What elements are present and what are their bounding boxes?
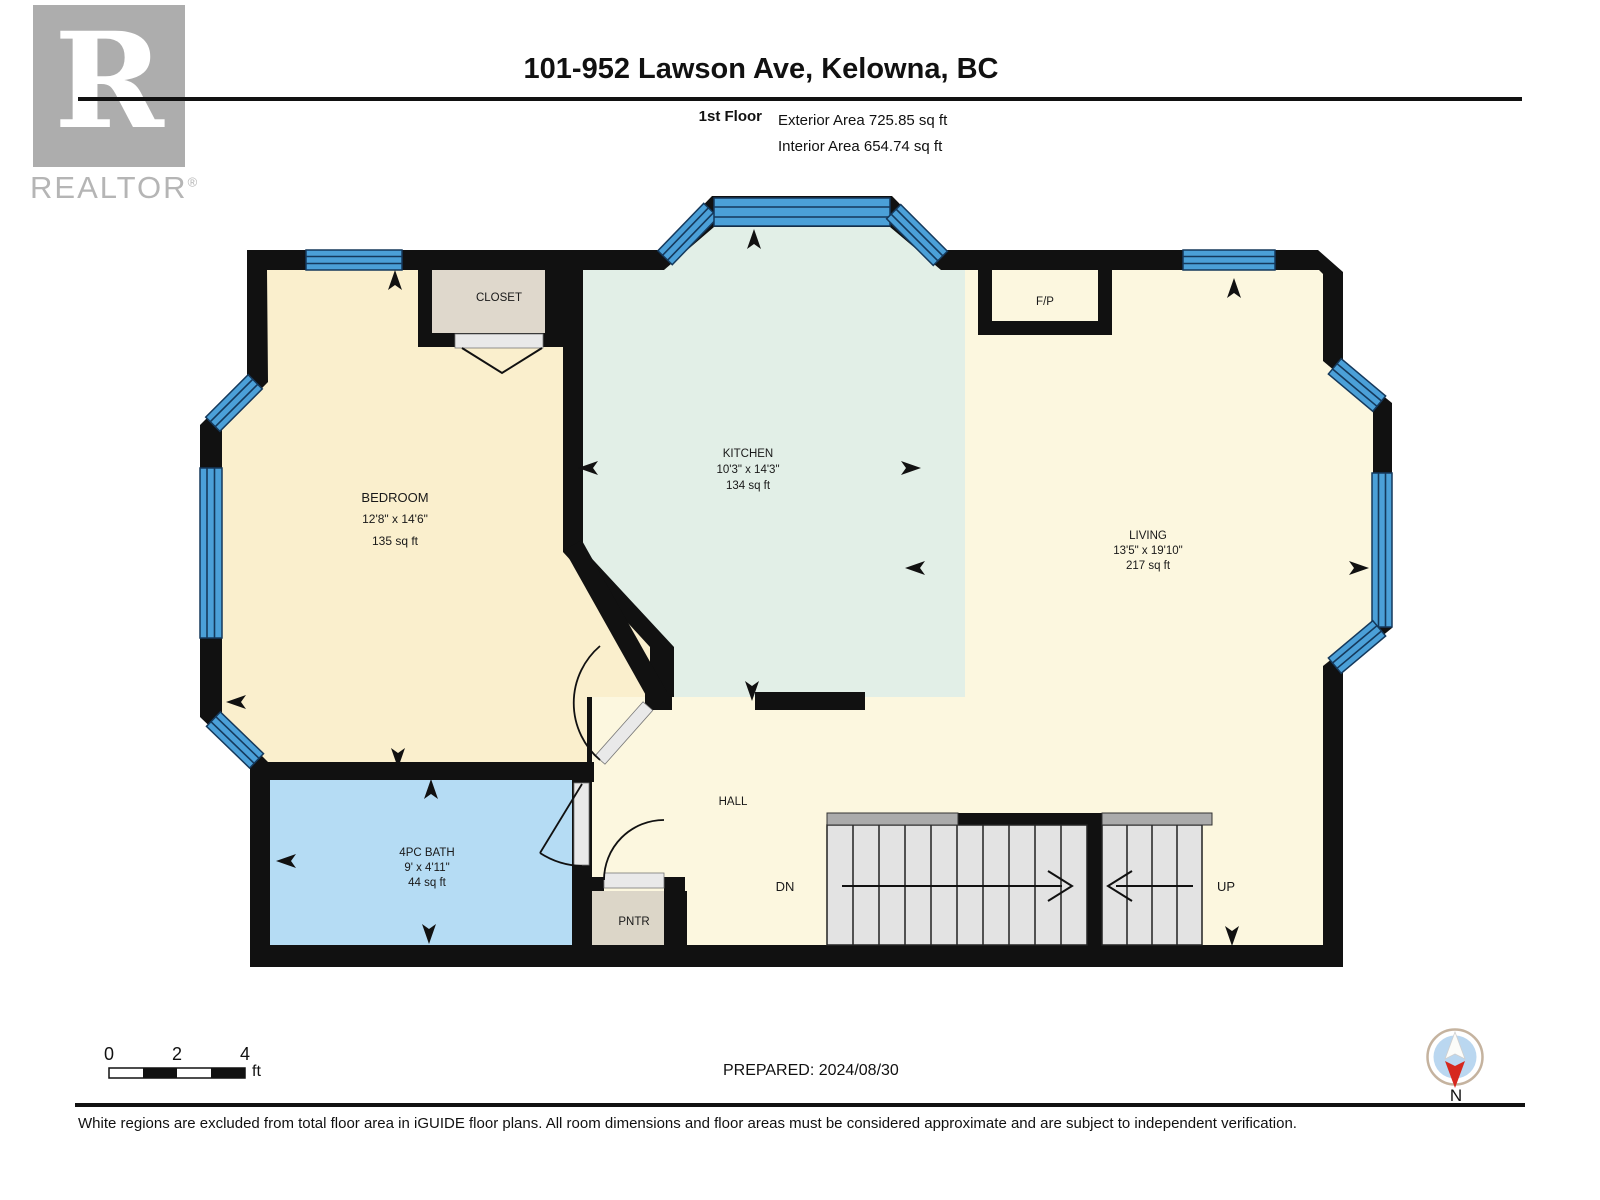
bedroom-area: 135 sq ft xyxy=(372,534,419,548)
stairs-down-railing xyxy=(827,813,958,825)
floorplan-page: R REALTOR® 101-952 Lawson Ave, Kelowna, … xyxy=(0,0,1600,1200)
stairs-up-label: UP xyxy=(1217,879,1235,894)
floorplan-drawing: BEDROOM 12'8" x 14'6" 135 sq ft KITCHEN … xyxy=(0,0,1600,1200)
disclaimer-text: White regions are excluded from total fl… xyxy=(78,1115,1528,1132)
stairs-down-label: DN xyxy=(776,879,795,894)
realtor-logo: R xyxy=(33,5,185,167)
header-rule xyxy=(78,97,1522,101)
fireplace-label: F/P xyxy=(1036,296,1054,308)
realtor-wordmark: REALTOR® xyxy=(30,170,199,206)
prepared-date: PREPARED: 2024/08/30 xyxy=(723,1062,899,1080)
bedroom-label: BEDROOM xyxy=(361,490,428,505)
kitchen-dims: 10'3" x 14'3" xyxy=(716,464,779,476)
kitchen-bay-top-window xyxy=(714,198,890,226)
stairs-up-railing xyxy=(1102,813,1212,825)
bedroom-left-window xyxy=(200,468,222,638)
bedroom-top-window xyxy=(306,250,402,270)
stairs-up xyxy=(1102,813,1212,945)
kitchen-area: 134 sq ft xyxy=(726,480,771,492)
bedroom-dims: 12'8" x 14'6" xyxy=(362,512,428,526)
bath-door-opening xyxy=(574,783,589,865)
kitchen-label: KITCHEN xyxy=(723,448,773,460)
scale-unit: ft xyxy=(252,1063,261,1081)
stairs-down xyxy=(827,813,1087,945)
footer-rule xyxy=(75,1103,1525,1107)
living-right-window xyxy=(1372,473,1392,627)
living-area: 217 sq ft xyxy=(1126,560,1171,572)
realtor-logo-r: R xyxy=(54,16,164,148)
scale-tick-0: 0 xyxy=(89,1044,129,1065)
closet-door-track xyxy=(455,334,543,348)
compass-icon xyxy=(1424,1024,1488,1092)
living-top-window xyxy=(1183,250,1275,270)
registered-mark: ® xyxy=(188,175,200,190)
hall-label: HALL xyxy=(719,796,748,808)
bath-area: 44 sq ft xyxy=(408,877,447,889)
bath-dims: 9' x 4'11" xyxy=(404,862,449,874)
living-dims: 13'5" x 19'10" xyxy=(1113,545,1182,557)
scale-bar xyxy=(109,1068,245,1078)
scale-tick-2: 2 xyxy=(157,1044,197,1065)
bath-label: 4PC BATH xyxy=(399,847,454,859)
living-label: LIVING xyxy=(1129,530,1167,542)
scale-tick-4: 4 xyxy=(225,1044,265,1065)
pantry-door-opening xyxy=(604,873,664,888)
closet-label: CLOSET xyxy=(476,292,522,304)
pantry-label: PNTR xyxy=(618,916,649,928)
